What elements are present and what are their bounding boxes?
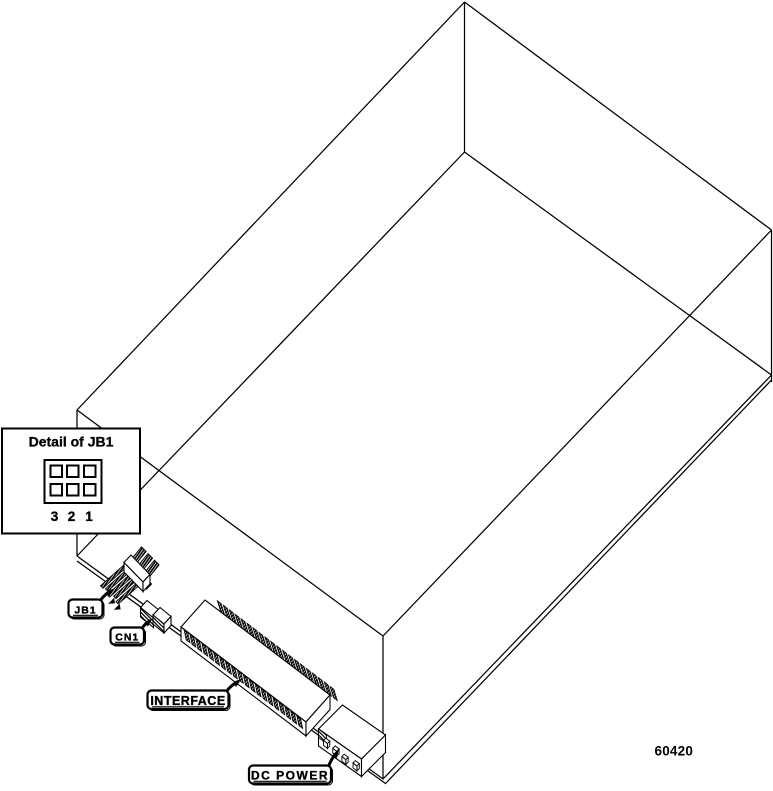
svg-text:Detail of JB1: Detail of JB1	[29, 434, 114, 450]
svg-text:1: 1	[85, 509, 93, 524]
svg-text:3: 3	[51, 509, 59, 524]
svg-text:DC POWER: DC POWER	[251, 769, 329, 783]
svg-text:INTERFACE: INTERFACE	[150, 694, 225, 708]
svg-text:2: 2	[68, 509, 76, 524]
svg-text:60420: 60420	[655, 744, 694, 759]
